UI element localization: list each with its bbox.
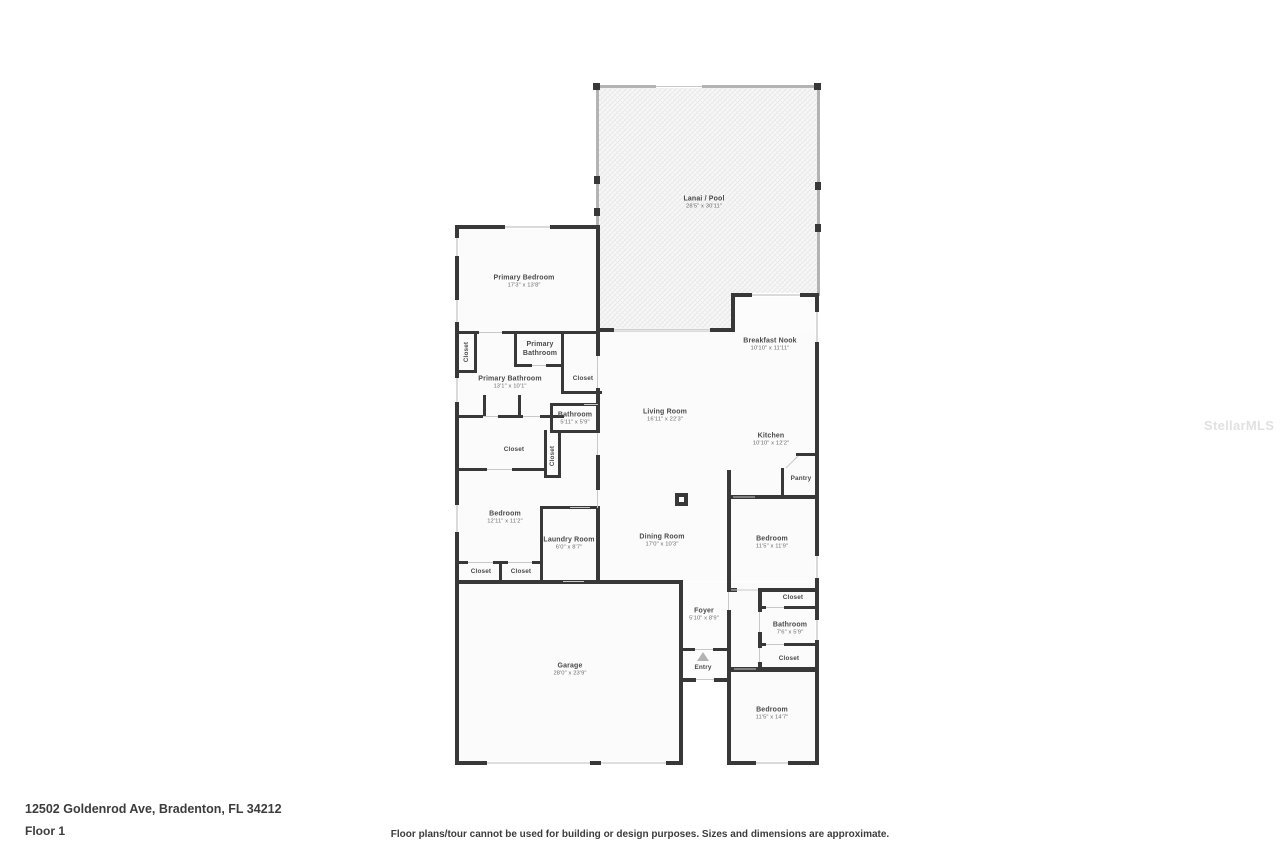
column-center bbox=[679, 497, 684, 502]
floorplan-drawing bbox=[0, 0, 1280, 853]
floor-fills bbox=[457, 87, 817, 763]
stellar-mls-watermark: StellarMLS bbox=[1204, 418, 1274, 433]
lanai-window-line bbox=[656, 86, 702, 87]
floorplan-page: Lanai / Pool 28'5" x 30'11" Primary Bedr… bbox=[0, 0, 1280, 853]
disclaimer-text: Floor plans/tour cannot be used for buil… bbox=[391, 829, 889, 840]
property-address: 12502 Goldenrod Ave, Bradenton, FL 34212 bbox=[25, 802, 282, 816]
floor-label: Floor 1 bbox=[25, 824, 65, 838]
